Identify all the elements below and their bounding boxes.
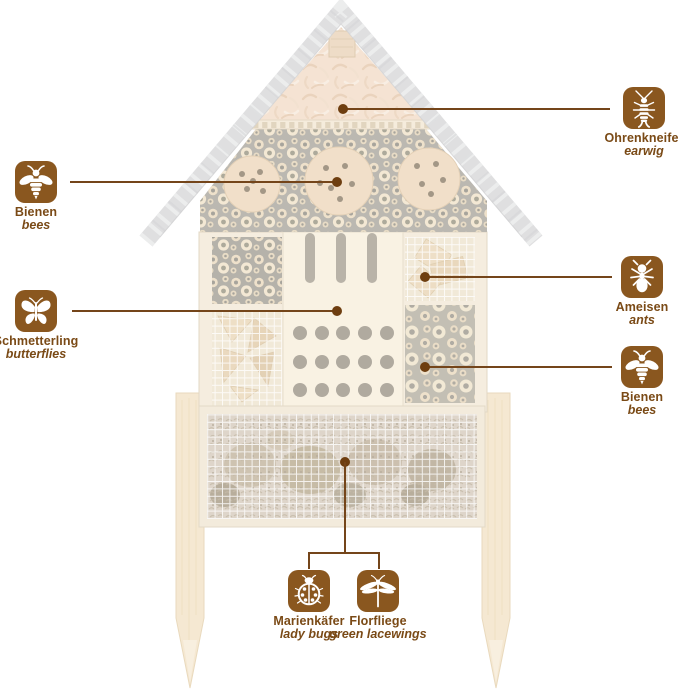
callout-butterflies: Schmetterling butterflies [0,290,96,361]
callout-lacewings-label-en: green lacewings [318,628,438,641]
ant-icon [621,256,663,298]
connector-butterflies [72,310,335,312]
connector-bottom-branch [308,552,380,554]
callout-ants: Ameisen ants [582,256,679,327]
callout-butterflies-label-en: butterflies [0,348,96,361]
connector-earwig [346,108,610,110]
callout-bees-lower-label-en: bees [582,404,679,417]
connector-dot-bees-upper [332,177,342,187]
connector-bottom-stub-right [378,552,380,569]
connector-bees-upper [70,181,335,183]
callout-bees-upper: Bienen bees [0,161,96,232]
lacewing-icon [357,570,399,612]
callout-bees-upper-label-en: bees [0,219,96,232]
insect-hotel-diagram: Ohrenkneifer earwig [0,0,679,694]
callout-earwig-label-en: earwig [584,145,679,158]
butterfly-icon [15,290,57,332]
connector-dot-bees-lower [420,362,430,372]
connector-dot-ants [420,272,430,282]
earwig-icon [623,87,665,129]
bee-icon [15,161,57,203]
bee-icon [621,346,663,388]
callout-earwig: Ohrenkneifer earwig [584,87,679,158]
connector-bottom-stem [344,462,346,554]
callout-lacewings: Florfliege green lacewings [318,570,438,641]
callout-ants-label-en: ants [582,314,679,327]
connector-bottom-stub-left [308,552,310,569]
connector-dot-earwig [338,104,348,114]
connector-dot-butterflies [332,306,342,316]
callout-bees-lower: Bienen bees [582,346,679,417]
